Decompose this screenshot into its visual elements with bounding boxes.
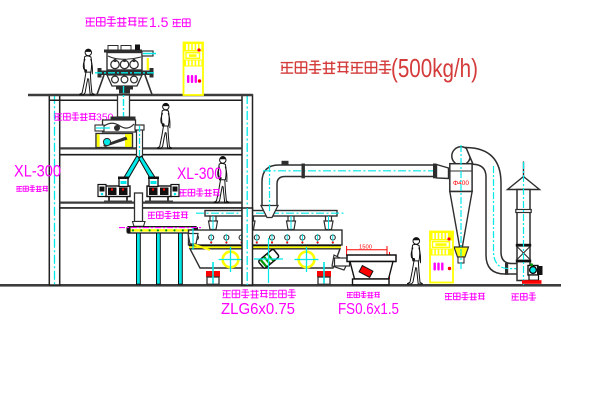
svg-text:FS0.6x1.5: FS0.6x1.5 — [338, 301, 399, 318]
svg-text:XL-300: XL-300 — [177, 165, 222, 183]
svg-text:1.5: 1.5 — [149, 14, 169, 30]
svg-text:(500kg/h): (500kg/h) — [391, 53, 478, 83]
svg-text:1500: 1500 — [359, 244, 372, 250]
svg-text:ZLG6x0.75: ZLG6x0.75 — [221, 301, 295, 318]
svg-text:XL-300: XL-300 — [14, 163, 61, 181]
